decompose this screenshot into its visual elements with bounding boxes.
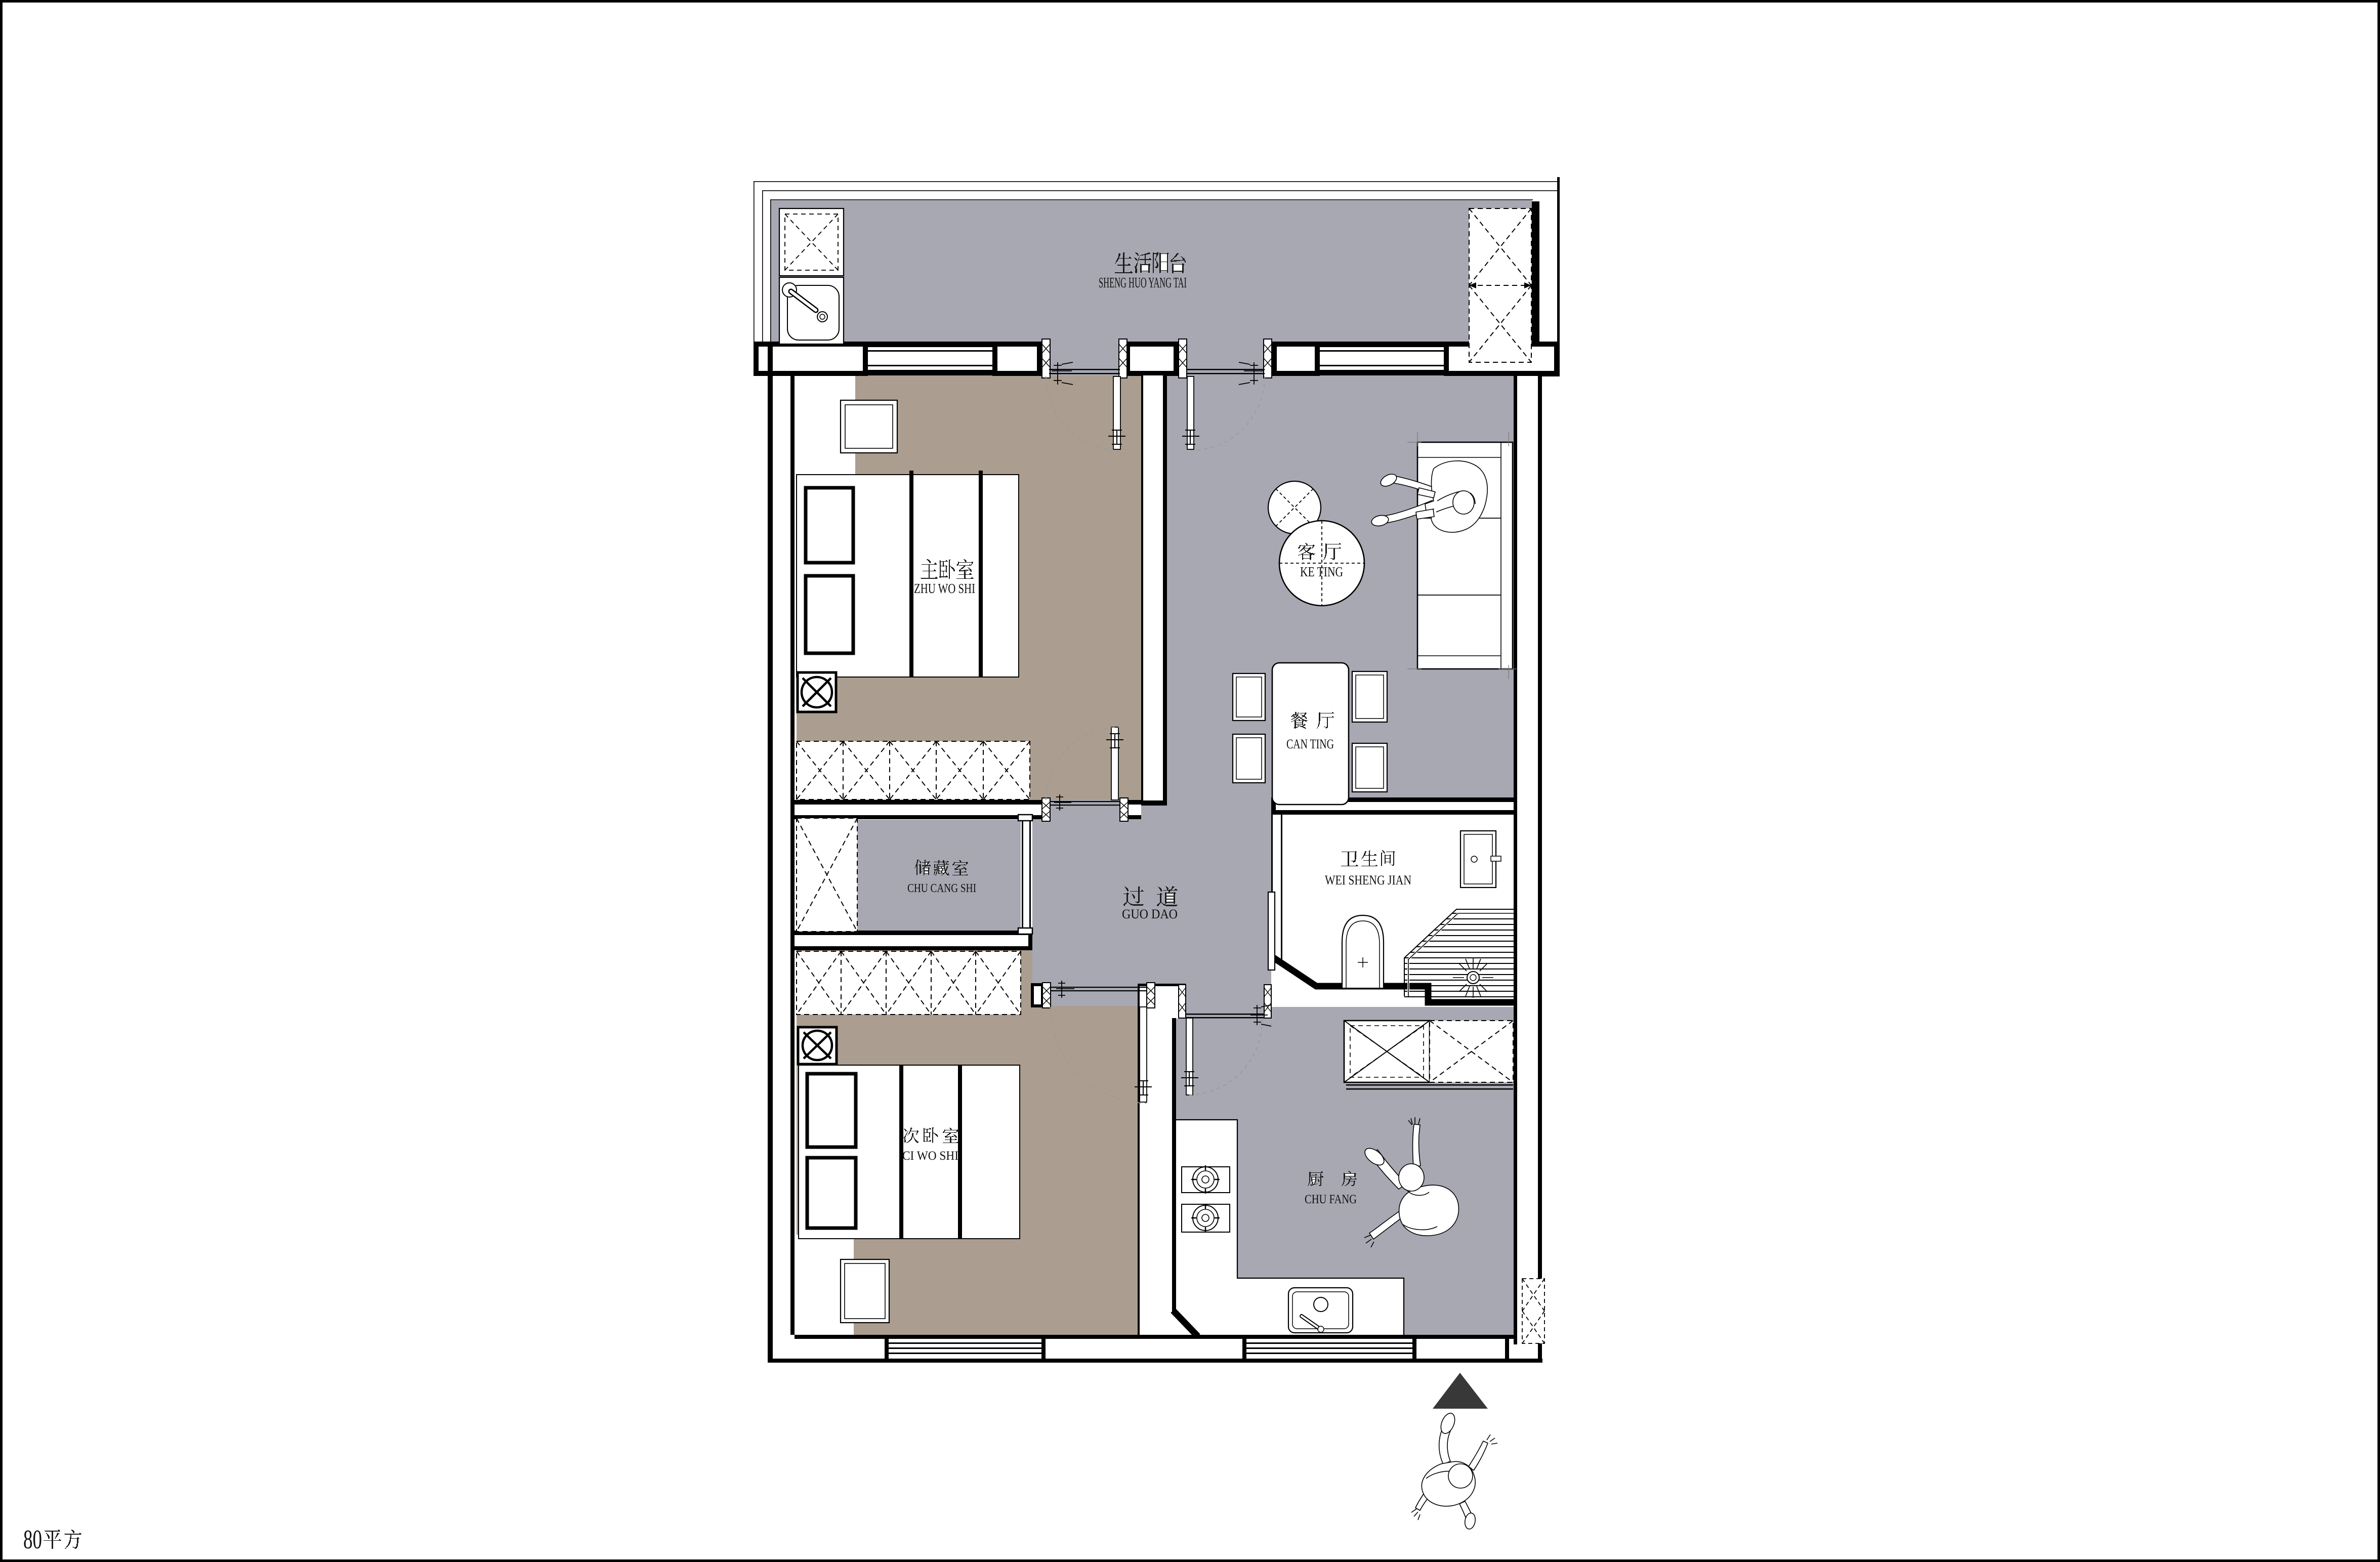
svg-text:CI WO SHI: CI WO SHI	[902, 1149, 958, 1163]
svg-text:CHU FANG: CHU FANG	[1305, 1193, 1357, 1206]
svg-text:WEI SHENG JIAN: WEI SHENG JIAN	[1325, 873, 1411, 888]
svg-text:CAN TING: CAN TING	[1286, 737, 1334, 751]
svg-text:ZHU WO SHI: ZHU WO SHI	[914, 581, 975, 596]
svg-text:CHU CANG SHI: CHU CANG SHI	[907, 882, 976, 895]
svg-text:SHENG HUO YANG TAI: SHENG HUO YANG TAI	[1099, 275, 1187, 291]
svg-text:80: 80	[23, 1525, 42, 1554]
svg-text:KE TING: KE TING	[1300, 564, 1343, 579]
svg-text:GUO DAO: GUO DAO	[1122, 907, 1178, 921]
